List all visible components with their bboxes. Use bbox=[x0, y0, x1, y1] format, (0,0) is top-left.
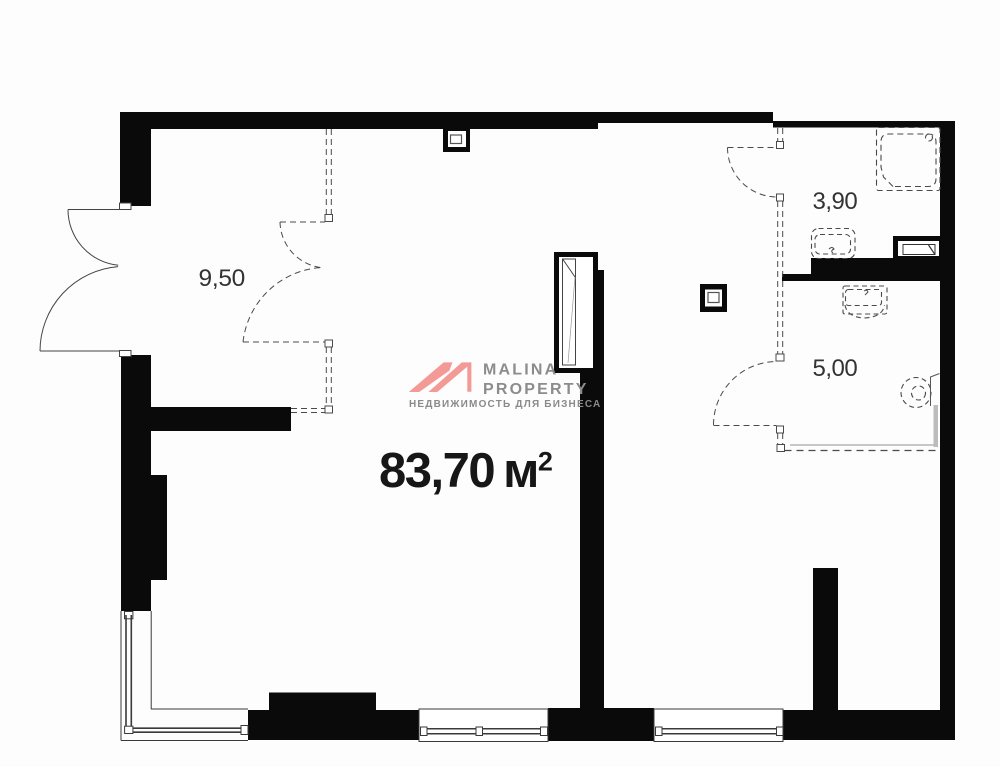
svg-text:83,70м2: 83,70м2 bbox=[379, 444, 552, 498]
svg-text:НЕДВИЖИМОСТЬ ДЛЯ БИЗНЕСА: НЕДВИЖИМОСТЬ ДЛЯ БИЗНЕСА bbox=[409, 399, 601, 410]
svg-text:9,50: 9,50 bbox=[199, 265, 245, 292]
svg-text:5,00: 5,00 bbox=[813, 355, 858, 382]
svg-text:MALINA: MALINA bbox=[483, 362, 558, 379]
svg-text:3,90: 3,90 bbox=[813, 188, 858, 215]
svg-text:PROPERTY: PROPERTY bbox=[483, 381, 589, 398]
